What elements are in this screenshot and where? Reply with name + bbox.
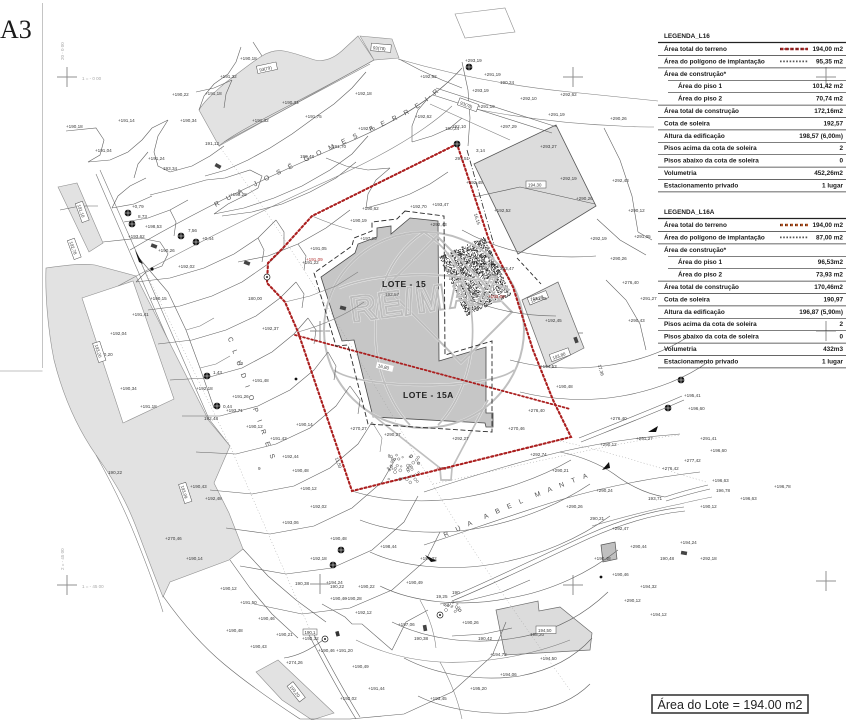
svg-text:LEGENDA_L16A: LEGENDA_L16A	[664, 209, 715, 216]
svg-text:+197,29: +197,29	[360, 236, 377, 241]
svg-text:+292,47: +292,47	[612, 526, 629, 531]
svg-text:Volumetria: Volumetria	[664, 346, 697, 353]
svg-text:+190,21: +190,21	[276, 632, 293, 637]
svg-text:+190,18: +190,18	[240, 56, 257, 61]
svg-text:1,43: 1,43	[213, 370, 222, 375]
svg-text:+290,43: +290,43	[628, 318, 645, 323]
svg-text:+192,02: +192,02	[178, 264, 195, 269]
svg-text:19,25: 19,25	[436, 594, 448, 599]
svg-text:+191,04: +191,04	[95, 148, 112, 153]
svg-text:+290,26: +290,26	[610, 256, 627, 261]
svg-text:+190,28: +190,28	[230, 192, 247, 197]
svg-text:190,48: 190,48	[660, 556, 674, 561]
svg-text:Estacionamento privado: Estacionamento privado	[664, 182, 738, 189]
svg-text:3,14: 3,14	[476, 148, 485, 153]
svg-text:+190,12: +190,12	[700, 504, 717, 509]
svg-text:+192,70: +192,70	[358, 126, 375, 131]
svg-text:Cota de soleira: Cota de soleira	[664, 120, 710, 127]
svg-text:+191,32: +191,32	[220, 74, 237, 79]
svg-text:193,71: 193,71	[648, 496, 662, 501]
svg-text:+191,26: +191,26	[232, 394, 249, 399]
svg-text:Pisos acima da cota de soleira: Pisos acima da cota de soleira	[664, 321, 757, 328]
svg-text:+292,10: +292,10	[520, 96, 537, 101]
svg-text:Área do piso 1: Área do piso 1	[678, 257, 722, 266]
svg-text:194,50: 194,50	[538, 628, 552, 633]
svg-text:+190,46: +190,46	[612, 572, 629, 577]
svg-text:+194,06: +194,06	[500, 672, 517, 677]
svg-text:+192,18: +192,18	[310, 556, 327, 561]
svg-text:LOTE - 15A: LOTE - 15A	[403, 390, 454, 400]
svg-text:+194,53: +194,53	[540, 364, 557, 369]
svg-text:+191,18: +191,18	[140, 404, 157, 409]
svg-text:+290,44: +290,44	[630, 544, 647, 549]
svg-text:Pisos abaixo da cota de soleir: Pisos abaixo da cota de soleira	[664, 334, 759, 341]
svg-text:194,00 m2: 194,00 m2	[812, 222, 843, 229]
svg-text:Altura da edificação: Altura da edificação	[664, 133, 725, 140]
svg-text:+291,27: +291,27	[640, 296, 657, 301]
svg-text:+290,27: +290,27	[384, 432, 401, 437]
svg-text:101,42 m2: 101,42 m2	[812, 83, 843, 90]
svg-text:+290,12: +290,12	[624, 598, 641, 603]
svg-text:+192,62: +192,62	[415, 114, 432, 119]
svg-text:+192,52: +192,52	[494, 208, 511, 213]
svg-text:+290,26: +290,26	[610, 116, 627, 121]
svg-text:+192,18: +192,18	[196, 386, 213, 391]
svg-text:+193,62: +193,62	[128, 234, 145, 239]
svg-text:Área do polígono de implantaçã: Área do polígono de implantação	[664, 56, 765, 65]
svg-text:Pisos acima da cota de soleira: Pisos acima da cota de soleira	[664, 145, 757, 152]
svg-text:432m3: 432m3	[823, 346, 843, 353]
svg-text:+190,34: +190,34	[282, 100, 299, 105]
svg-text:+293,19: +293,19	[465, 58, 482, 63]
svg-text:+194,12: +194,12	[650, 612, 667, 617]
svg-text:180,00: 180,00	[248, 296, 262, 301]
svg-text:172,16m2: 172,16m2	[814, 108, 843, 115]
svg-text:192,57: 192,57	[823, 120, 843, 127]
svg-text:9: 9	[258, 466, 261, 471]
svg-text:+291,19: +291,19	[548, 112, 565, 117]
svg-text:+190,12: +190,12	[220, 586, 237, 591]
svg-text:196,78: 196,78	[716, 488, 730, 493]
svg-text:+192,45: +192,45	[466, 180, 483, 185]
svg-text:20 - 0 00: 20 - 0 00	[60, 42, 65, 60]
svg-text:+190,19: +190,19	[350, 218, 367, 223]
svg-text:+292,43: +292,43	[430, 222, 447, 227]
svg-text:+293,27: +293,27	[540, 144, 557, 149]
svg-text:+190,46: +190,46	[258, 616, 275, 621]
svg-text:70: 70	[238, 361, 244, 366]
svg-text:+276,40: +276,40	[528, 408, 545, 413]
svg-text:Cota de soleira: Cota de soleira	[664, 296, 710, 303]
svg-text:87,00 m2: 87,00 m2	[816, 234, 843, 241]
svg-text:+192,70: +192,70	[410, 204, 427, 209]
svg-text:+192,32: +192,32	[302, 636, 319, 641]
svg-text:+190,22: +190,22	[172, 92, 189, 97]
svg-text:7,56: 7,56	[188, 228, 197, 233]
svg-text:A3: A3	[0, 15, 32, 44]
svg-text:+191,50: +191,50	[240, 600, 257, 605]
svg-text:+0,44: +0,44	[202, 236, 214, 241]
svg-text:+190,48: +190,48	[594, 556, 611, 561]
svg-text:Volumetria: Volumetria	[664, 170, 697, 177]
svg-text:Área do piso 2: Área do piso 2	[678, 270, 722, 279]
svg-text:96,53m2: 96,53m2	[818, 259, 844, 266]
svg-text:95,35 m2: 95,35 m2	[816, 58, 843, 65]
svg-text:0: 0	[839, 334, 843, 341]
svg-text:+191,41: +191,41	[132, 312, 149, 317]
svg-text:+270,46: +270,46	[165, 536, 182, 541]
svg-text:190: 190	[452, 590, 460, 595]
svg-text:+195,20: +195,20	[470, 686, 487, 691]
svg-text:452,26m2: 452,26m2	[814, 170, 843, 177]
svg-text:+190,12: +190,12	[246, 424, 263, 429]
svg-text:+276,40: +276,40	[622, 280, 639, 285]
svg-text:Estacionamento privado: Estacionamento privado	[664, 358, 738, 365]
svg-text:196,87 (5,90m): 196,87 (5,90m)	[799, 309, 843, 316]
svg-text:+191,24: +191,24	[148, 156, 165, 161]
svg-text:170,46m2: 170,46m2	[814, 284, 843, 291]
svg-text:2: 2	[839, 321, 843, 328]
svg-text:+196,60: +196,60	[710, 448, 727, 453]
svg-text:190,48: 190,48	[300, 154, 314, 159]
svg-text:193,34: 193,34	[163, 166, 177, 171]
svg-text:73,93 m2: 73,93 m2	[816, 272, 843, 279]
svg-text:190,97: 190,97	[823, 296, 843, 303]
svg-text:293,47: 293,47	[500, 266, 514, 271]
svg-text:8,73: 8,73	[138, 214, 147, 219]
svg-text:+192,18: +192,18	[355, 91, 372, 96]
svg-text:+293,19: +293,19	[472, 88, 489, 93]
svg-text:Área do Lote = 194.00 m2: Área do Lote = 194.00 m2	[658, 697, 803, 712]
svg-text:1 = - 0 00: 1 = - 0 00	[82, 76, 102, 81]
svg-text:+190,43: +190,43	[250, 644, 267, 649]
svg-text:+193,45: +193,45	[430, 696, 447, 701]
svg-text:+192,44: +192,44	[282, 454, 299, 459]
svg-text:+292,19: +292,19	[590, 236, 607, 241]
svg-text:+191,14: +191,14	[118, 118, 135, 123]
svg-text:+291,05: +291,05	[634, 234, 651, 239]
svg-text:+190,28: +190,28	[345, 596, 362, 601]
svg-text:+198,53: +198,53	[145, 224, 162, 229]
svg-text:+297,29: +297,29	[500, 124, 517, 129]
svg-text:+196,60: +196,60	[688, 406, 705, 411]
svg-text:Área de construção*: Área de construção*	[664, 69, 727, 78]
svg-text:290,21: 290,21	[590, 516, 604, 521]
svg-text:+276,40: +276,40	[610, 416, 627, 421]
svg-text:Área total de construção: Área total de construção	[664, 282, 739, 291]
svg-text:+192,02: +192,02	[310, 504, 327, 509]
svg-text:194,00 m2: 194,00 m2	[812, 46, 843, 53]
svg-text:+193,06: +193,06	[282, 520, 299, 525]
svg-text:+0,79: +0,79	[132, 204, 144, 209]
svg-text:+291,27: +291,27	[636, 436, 653, 441]
svg-text:+190,49: +190,49	[406, 580, 423, 585]
svg-text:Área do piso 1: Área do piso 1	[678, 81, 722, 90]
svg-text:+270,46: +270,46	[508, 426, 525, 431]
svg-text:+191,09: +191,09	[306, 257, 323, 262]
svg-text:+192,12: +192,12	[355, 610, 372, 615]
svg-text:+193,47: +193,47	[432, 202, 449, 207]
svg-text:190,38: 190,38	[414, 636, 428, 641]
svg-text:192,10: 192,10	[452, 124, 466, 129]
svg-text:+190,15: +190,15	[150, 296, 167, 301]
svg-text:+190,18: +190,18	[66, 124, 83, 129]
svg-text:+190,14: +190,14	[296, 422, 313, 427]
svg-text:+190,43: +190,43	[190, 484, 207, 489]
svg-text:192,57: 192,57	[385, 292, 399, 297]
svg-text:2: 2	[839, 145, 843, 152]
svg-text:+196,63: +196,63	[740, 496, 757, 501]
svg-text:1 lugar: 1 lugar	[822, 182, 843, 189]
svg-text:+198,44: +198,44	[380, 544, 397, 549]
svg-text:+291,19: +291,19	[484, 72, 501, 77]
svg-text:Área total do terreno: Área total do terreno	[664, 220, 727, 229]
svg-text:190,1: 190,1	[305, 630, 317, 635]
svg-text:+196,63: +196,63	[712, 478, 729, 483]
svg-text:190,38: 190,38	[295, 581, 309, 586]
svg-text:Pisos abaixo da cota de soleir: Pisos abaixo da cota de soleira	[664, 158, 759, 165]
svg-text:+194,24: +194,24	[326, 580, 343, 585]
svg-text:+192,48: +192,48	[205, 496, 222, 501]
svg-text:+193: +193	[436, 466, 447, 471]
svg-text:190,24: 190,24	[500, 80, 514, 85]
svg-text:Área total de construção: Área total de construção	[664, 106, 739, 115]
svg-text:+192,04: +192,04	[110, 331, 127, 336]
svg-text:+190,12: +190,12	[300, 486, 317, 491]
svg-text:Área do polígono de implantaçã: Área do polígono de implantação	[664, 232, 765, 241]
svg-text:Área do piso 2: Área do piso 2	[678, 94, 722, 103]
svg-text:+194,24: +194,24	[680, 540, 697, 545]
svg-text:+192,37: +192,37	[262, 326, 279, 331]
svg-text:LEGENDA_L16: LEGENDA_L16	[664, 33, 710, 40]
svg-text:+292,19: +292,19	[470, 260, 487, 265]
svg-text:+190,34: +190,34	[180, 118, 197, 123]
svg-text:+190,48: +190,48	[292, 468, 309, 473]
svg-text:+191,05: +191,05	[310, 246, 327, 251]
svg-text:192,48: 192,48	[204, 416, 218, 421]
svg-text:+290,26: +290,26	[566, 504, 583, 509]
svg-text:+292,62: +292,62	[560, 92, 577, 97]
svg-text:190,22: 190,22	[108, 470, 122, 475]
svg-text:+292,43: +292,43	[612, 178, 629, 183]
svg-text:+277,42: +277,42	[684, 458, 701, 463]
svg-text:+190,34: +190,34	[120, 386, 137, 391]
svg-text:+191,18: +191,18	[205, 91, 222, 96]
svg-text:+274,26: +274,26	[286, 660, 303, 665]
svg-text:1 = - 45 00: 1 = - 45 00	[82, 584, 104, 589]
svg-text:190,42: 190,42	[478, 636, 492, 641]
svg-text:+292,74: +292,74	[530, 452, 547, 457]
svg-text:+196,78: +196,78	[774, 484, 791, 489]
svg-text:+191,44: +191,44	[368, 686, 385, 691]
svg-text:+191,05: +191,05	[530, 296, 547, 301]
svg-text:1 lugar: 1 lugar	[822, 358, 843, 365]
svg-text:+190,62: +190,62	[362, 206, 379, 211]
svg-text:Área total do terreno: Área total do terreno	[664, 44, 727, 53]
svg-text:+191,43: +191,43	[270, 436, 287, 441]
svg-text:+190,46 +191,20: +190,46 +191,20	[318, 648, 353, 653]
svg-text:Área de construção*: Área de construção*	[664, 245, 727, 254]
svg-text:+192,45: +192,45	[545, 318, 562, 323]
svg-text:70,74 m2: 70,74 m2	[816, 96, 843, 103]
svg-text:+276,42: +276,42	[662, 466, 679, 471]
svg-text:+190,48: +190,48	[330, 536, 347, 541]
svg-text:+290,12: +290,12	[600, 442, 617, 447]
svg-text:+194,72: +194,72	[490, 652, 507, 657]
svg-text:+195,41: +195,41	[684, 393, 701, 398]
svg-text:+192,62: +192,62	[420, 74, 437, 79]
svg-text:+290,21: +290,21	[552, 468, 569, 473]
svg-text:191,12: 191,12	[205, 141, 219, 146]
svg-text:+192,02: +192,02	[340, 696, 357, 701]
svg-text:+292,27: +292,27	[452, 436, 469, 441]
svg-text:+270,27: +270,27	[350, 426, 367, 431]
svg-text:Altura da edificação: Altura da edificação	[664, 309, 725, 316]
svg-text:+292,19: +292,19	[560, 176, 577, 181]
svg-text:LOTE - 15: LOTE - 15	[382, 279, 426, 289]
svg-text:+190,48: +190,48	[226, 628, 243, 633]
svg-text:+194,32: +194,32	[420, 556, 437, 561]
svg-text:+290,12: +290,12	[628, 208, 645, 213]
svg-text:191,70: 191,70	[332, 144, 346, 149]
svg-text:+290,24: +290,24	[596, 488, 613, 493]
svg-text:+190,26: +190,26	[158, 248, 175, 253]
svg-text:+190,14: +190,14	[186, 556, 203, 561]
svg-text:+191,75: +191,75	[305, 114, 322, 119]
svg-text:+291,19: +291,19	[478, 104, 495, 109]
svg-text:+292,18: +292,18	[700, 556, 717, 561]
svg-text:+194,50: +194,50	[540, 656, 557, 661]
svg-text:+190,22: +190,22	[358, 584, 375, 589]
svg-text:+194,32: +194,32	[640, 584, 657, 589]
svg-text:+190,49: +190,49	[352, 664, 369, 669]
svg-text:+197,06: +197,06	[398, 622, 415, 627]
svg-text:+191,48: +191,48	[252, 378, 269, 383]
svg-text:+290,26: +290,26	[576, 196, 593, 201]
svg-text:+190,48: +190,48	[556, 384, 573, 389]
svg-text:+291,41: +291,41	[700, 436, 717, 441]
svg-text:0: 0	[839, 158, 843, 165]
svg-text:2 = - 45 00: 2 = - 45 00	[60, 548, 65, 570]
svg-text:+190,26: +190,26	[462, 620, 479, 625]
svg-text:198,57 (6,00m): 198,57 (6,00m)	[799, 133, 843, 140]
svg-text:194,30: 194,30	[528, 183, 542, 188]
svg-text:+191,32: +191,32	[252, 118, 269, 123]
svg-text:291,51: 291,51	[455, 156, 469, 161]
svg-text:+193,59: +193,59	[488, 294, 505, 299]
svg-text:+193,71: +193,71	[226, 408, 243, 413]
